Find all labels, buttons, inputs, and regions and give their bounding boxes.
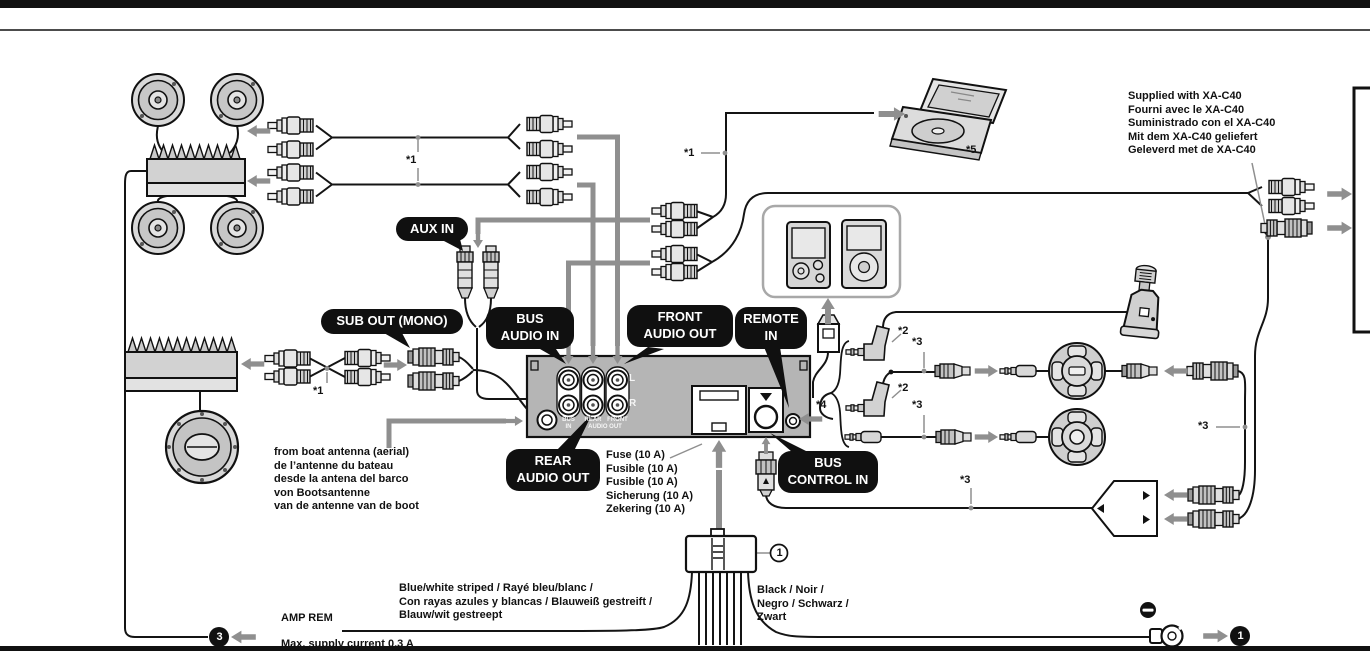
antenna-jack bbox=[538, 411, 557, 430]
marker-note1: *1 bbox=[684, 147, 694, 159]
note-fuse: Fuse (10 A) Fusible (10 A) Fusible (10 A… bbox=[606, 449, 693, 517]
extension-socket-icon bbox=[1122, 364, 1157, 378]
portable-media-players bbox=[763, 206, 900, 297]
note-line: Con rayas azules y blancas / Blauweiß ge… bbox=[399, 596, 652, 610]
remote-accessory-plugs bbox=[845, 326, 1036, 444]
rca-plug-icon bbox=[345, 350, 390, 367]
note-line: Zwart bbox=[757, 611, 849, 625]
note-line: Geleverd met de XA-C40 bbox=[1128, 144, 1275, 158]
callout-remote-in: REMOTE IN bbox=[735, 307, 807, 349]
speaker-icon bbox=[211, 74, 263, 126]
note-line: von Bootsantenne bbox=[274, 487, 419, 501]
channel-right-label: R bbox=[629, 398, 636, 409]
rca-plug-icon bbox=[527, 116, 572, 133]
rca-plug-icon bbox=[268, 164, 313, 181]
power-harness-connector bbox=[686, 529, 756, 572]
note-line: Zekering (10 A) bbox=[606, 503, 693, 517]
callout-aux-in: AUX IN bbox=[396, 217, 468, 241]
phono-jack-icon bbox=[457, 246, 473, 298]
bus-plug-icon bbox=[1187, 362, 1238, 380]
rca-plug-icon bbox=[265, 350, 310, 367]
note-line: Blauw/wit gestreept bbox=[399, 609, 652, 623]
rca-cord-to-amp2 bbox=[265, 348, 459, 390]
rca-plug-icon bbox=[268, 141, 313, 158]
note-line: from boat antenna (aerial) bbox=[274, 446, 419, 460]
callout-bus-audio-in: BUS AUDIO IN bbox=[486, 307, 574, 349]
marker-note4: *4 bbox=[816, 399, 826, 411]
power-amplifier-2 bbox=[125, 338, 237, 391]
rca-plug-icon bbox=[1269, 198, 1314, 215]
ref-amp-remote-lead: 3 bbox=[211, 629, 228, 646]
rca-plug-icon bbox=[652, 203, 697, 220]
sub-out-jack-icon bbox=[408, 372, 459, 390]
right-angle-plug-icon bbox=[846, 382, 889, 416]
center-rca-plugs bbox=[652, 203, 697, 281]
rca-plug-icon bbox=[265, 368, 310, 385]
y-adaptor bbox=[1092, 481, 1239, 536]
rca-plug-icon bbox=[527, 164, 572, 181]
extension-socket-icon bbox=[935, 364, 970, 378]
ipod-icon bbox=[842, 220, 886, 288]
marker-note3: *3 bbox=[1198, 420, 1208, 432]
subwoofer bbox=[166, 411, 238, 483]
note-line: Negro / Schwarz / bbox=[757, 598, 849, 612]
marker-note3: *3 bbox=[960, 474, 970, 486]
bus-plug-icon bbox=[1261, 219, 1312, 237]
jack-label-rear: REAR bbox=[580, 417, 606, 423]
note-line: Suministrado con el XA-C40 bbox=[1128, 117, 1275, 131]
callout-bus-control-in: BUS CONTROL IN bbox=[778, 451, 878, 493]
note-max-supply-current: Max. supply current 0.3 A bbox=[281, 638, 414, 651]
marker-note1: *1 bbox=[313, 385, 323, 397]
note-line: Fusible (10 A) bbox=[606, 476, 693, 490]
rca-plug-icon bbox=[268, 188, 313, 205]
rotary-commander-1 bbox=[1049, 343, 1105, 399]
rca-plug-icon bbox=[1269, 179, 1314, 196]
ground-terminal bbox=[1140, 602, 1185, 647]
rca-cords-to-amp1 bbox=[268, 116, 572, 206]
rca-plug-icon bbox=[527, 141, 572, 158]
ref-ground-lead: 1 bbox=[1232, 628, 1249, 645]
note-line: Black / Noir / bbox=[757, 584, 849, 598]
callout-sub-out-mono: SUB OUT (MONO) bbox=[321, 309, 463, 334]
marker-note1: *1 bbox=[406, 154, 416, 166]
note-line: Sicherung (10 A) bbox=[606, 490, 693, 504]
note-line: Mit dem XA-C40 geliefert bbox=[1128, 131, 1275, 145]
phono-jack-icon bbox=[483, 246, 499, 298]
rotary-commander-2 bbox=[1049, 409, 1105, 465]
walkman-icon bbox=[787, 222, 830, 288]
mini-plug-icon bbox=[845, 432, 881, 443]
note-blue-white-wire: Blue/white striped / Rayé bleu/blanc / C… bbox=[399, 582, 652, 623]
rca-plug-icon bbox=[268, 117, 313, 134]
xa-c40-cables bbox=[1261, 179, 1314, 238]
ref-power-connector: 1 bbox=[771, 545, 788, 562]
gimbal-rotary-commander bbox=[1120, 264, 1165, 339]
channel-left-label: L bbox=[629, 373, 635, 384]
jack-label-in: IN bbox=[560, 424, 577, 430]
bus-socket-icon bbox=[1188, 510, 1239, 528]
note-line: desde la antena del barco bbox=[274, 473, 419, 487]
note-amp-rem: AMP REM bbox=[281, 612, 333, 626]
bus-control-in-jack bbox=[749, 388, 783, 432]
bus-socket-icon bbox=[1188, 486, 1239, 504]
speaker-icon bbox=[132, 202, 184, 254]
note-line: Fuse (10 A) bbox=[606, 449, 693, 463]
rca-plug-icon bbox=[652, 246, 697, 263]
xa-c40-unit-box bbox=[1354, 88, 1370, 332]
rca-plug-icon bbox=[527, 189, 572, 206]
mini-plug-icon bbox=[1000, 366, 1036, 377]
bus-control-plug bbox=[756, 452, 776, 496]
rca-plug-icon bbox=[652, 221, 697, 238]
portable-dvd-player bbox=[890, 79, 1006, 160]
note-line: Fusible (10 A) bbox=[606, 463, 693, 477]
marker-note2: *2 bbox=[898, 325, 908, 337]
callout-rear-audio-out: REAR AUDIO OUT bbox=[506, 449, 600, 491]
note-line: van de antenne van de boot bbox=[274, 500, 419, 514]
note-line: Fourni avec le XA-C40 bbox=[1128, 104, 1275, 118]
sub-out-jack-icon bbox=[408, 348, 459, 366]
note-line: Supplied with XA-C40 bbox=[1128, 90, 1275, 104]
right-angle-plug-icon bbox=[846, 326, 889, 360]
speaker-icon bbox=[211, 202, 263, 254]
note-supplied-with-xa-c40: Supplied with XA-C40 Fourni avec le XA-C… bbox=[1128, 90, 1275, 158]
jack-label-audio-out: AUDIO OUT bbox=[580, 424, 630, 430]
marker-note3: *3 bbox=[912, 399, 922, 411]
note-line: de l’antenne du bateau bbox=[274, 460, 419, 474]
speaker-icon bbox=[132, 74, 184, 126]
note-boat-antenna: from boat antenna (aerial) de l’antenne … bbox=[274, 446, 419, 514]
wiring-diagram-page: AUX IN SUB OUT (MONO) BUS AUDIO IN FRONT… bbox=[0, 0, 1370, 651]
note-black-wire: Black / Noir / Negro / Schwarz / Zwart bbox=[757, 584, 849, 625]
power-connector-socket bbox=[692, 386, 746, 434]
extension-socket-icon bbox=[936, 430, 971, 444]
callout-front-audio-out: FRONT AUDIO OUT bbox=[627, 305, 733, 347]
marker-note5: *5 bbox=[966, 144, 976, 156]
marker-note2: *2 bbox=[898, 382, 908, 394]
jack-label-front: FRONT bbox=[604, 417, 631, 423]
marker-note3: *3 bbox=[912, 336, 922, 348]
note-line: Blue/white striped / Rayé bleu/blanc / bbox=[399, 582, 652, 596]
mini-plug-icon bbox=[1000, 432, 1036, 443]
rca-plug-icon bbox=[652, 264, 697, 281]
aux-in-jacks bbox=[457, 246, 499, 298]
jack-label-bus: BUS bbox=[558, 417, 579, 423]
rca-plug-icon bbox=[345, 369, 390, 386]
remote-in-jack bbox=[786, 414, 800, 428]
